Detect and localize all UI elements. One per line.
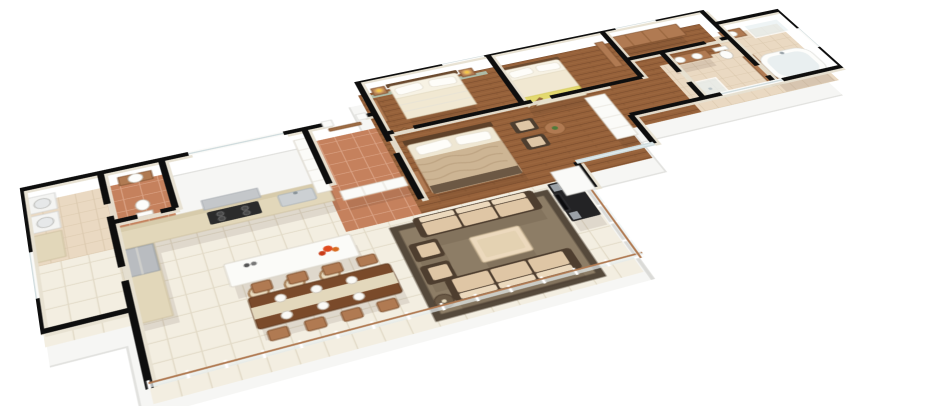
windows: [15, 0, 877, 299]
wall-hall-bath: [661, 52, 703, 98]
wall-tops: [15, 0, 946, 406]
wall-sides: [18, 0, 946, 406]
wall-master-jog: [630, 115, 654, 144]
apartment-3d-plan: [19, 11, 946, 406]
glass-wall-master: [575, 142, 655, 163]
wall-hall-west: [304, 129, 329, 184]
range-hood: [201, 188, 260, 210]
terrace-railing-east: [585, 187, 645, 259]
wall-dressing-south: [626, 38, 728, 60]
wall-bed1-bed2: [487, 55, 522, 104]
wall-layer: [15, 0, 946, 406]
floor-plan-render: [0, 0, 946, 406]
terrace-railing-south: [148, 250, 646, 389]
wall-entry-east: [100, 173, 131, 310]
wall-bed2-dressing: [601, 31, 641, 77]
